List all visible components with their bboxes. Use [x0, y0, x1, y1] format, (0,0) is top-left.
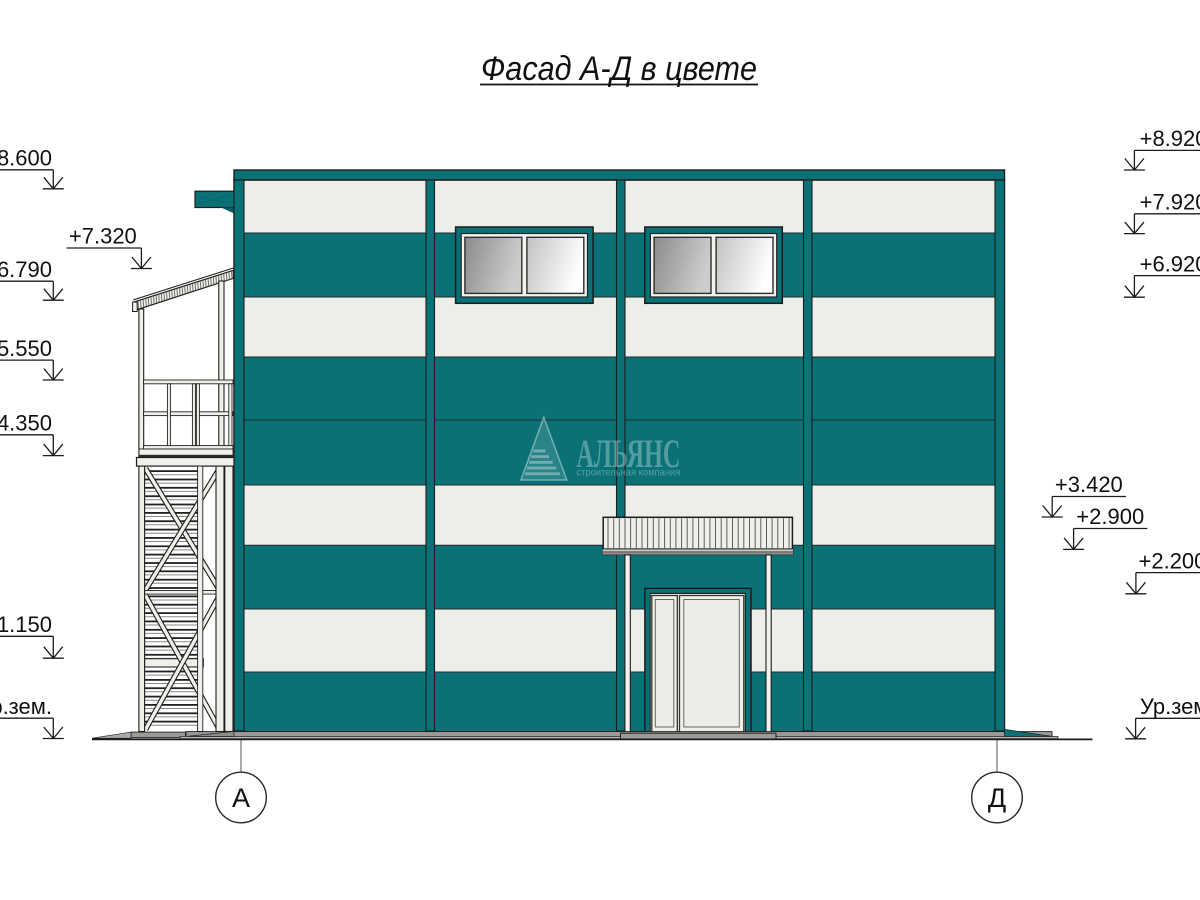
svg-text:Ур.зем.: Ур.зем.: [0, 694, 52, 719]
svg-text:А: А: [232, 783, 250, 813]
svg-text:+5.550: +5.550: [0, 336, 52, 361]
svg-text:Фасад А-Д в цвете: Фасад А-Д в цвете: [481, 50, 757, 88]
svg-text:+2.200: +2.200: [1139, 548, 1200, 573]
svg-text:строительная компания: строительная компания: [576, 467, 680, 479]
svg-text:+4.350: +4.350: [0, 411, 52, 436]
svg-text:+8.600: +8.600: [0, 146, 52, 171]
svg-text:+7.320: +7.320: [69, 224, 137, 249]
svg-text:+8.920: +8.920: [1140, 126, 1200, 151]
svg-text:+2.900: +2.900: [1076, 504, 1144, 529]
svg-text:+6.920: +6.920: [1140, 251, 1200, 276]
svg-text:+3.420: +3.420: [1055, 472, 1123, 497]
svg-text:+7.920: +7.920: [1140, 190, 1200, 215]
svg-text:+6.790: +6.790: [0, 257, 52, 282]
svg-text:Д: Д: [988, 783, 1006, 813]
svg-text:+1.150: +1.150: [0, 612, 52, 637]
svg-text:Ур.зем.: Ур.зем.: [1140, 694, 1200, 719]
